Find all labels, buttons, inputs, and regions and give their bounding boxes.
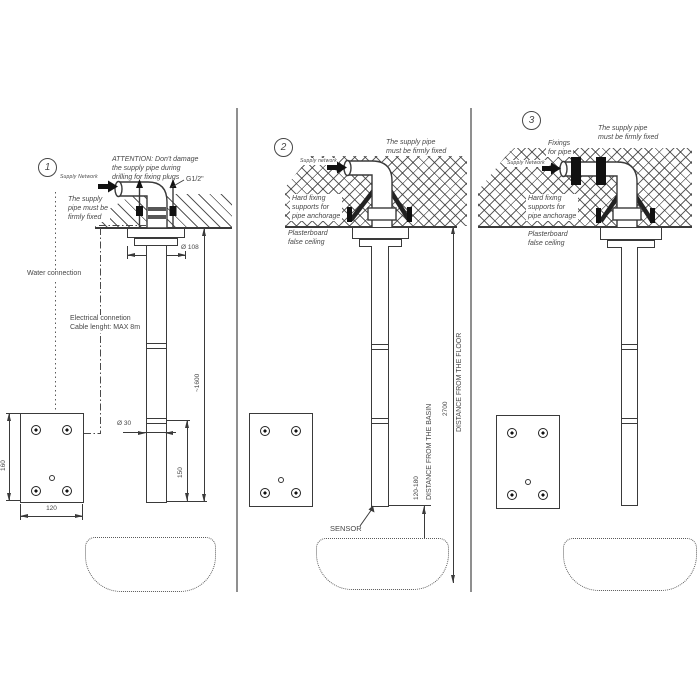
plate-hole — [260, 426, 270, 436]
panel1-number-text: 1 — [45, 162, 51, 173]
flow-arrow-icon — [98, 184, 108, 189]
panel3-firmly-fixed-label: The supply pipe must be firmly fixed — [596, 124, 660, 142]
panel2-plasterboard-label: Plasterboard false ceiling — [288, 229, 328, 247]
panel1-mounting-plate — [20, 413, 84, 503]
flow-arrow-icon — [327, 165, 337, 170]
panel3-pipe-clamp — [596, 157, 606, 185]
panel1-dim-plate-w-line — [20, 516, 83, 517]
panel1-basin-outline — [85, 537, 216, 592]
plate-center-hole — [525, 479, 531, 485]
panel2-dim-floor: 2700 — [442, 400, 449, 418]
panel1-electrical-label: Electrical connetion Cable lenght: MAX 8… — [68, 315, 142, 333]
plate-center-hole — [49, 475, 55, 481]
plate-hole — [62, 425, 72, 435]
panel1-dim-plate-w: 120 — [20, 505, 83, 512]
panel-divider-2 — [470, 108, 472, 592]
panel2-sensor-label: SENSOR — [330, 524, 362, 533]
panel2-vertical-pipe — [371, 246, 389, 507]
panel2-dim-floor-label: DISTANCE FROM THE FLOOR — [456, 333, 463, 432]
panel3-hard-fixing-label: Hard fixing supports for pipe anchorage — [526, 194, 578, 221]
panel2-anchor-right — [407, 207, 412, 222]
panel3-number: 3 — [522, 111, 541, 130]
plate-hole — [291, 426, 301, 436]
panel1-dim-height: ~1600 — [194, 374, 201, 392]
plate-hole — [291, 488, 301, 498]
panel1-vertical-pipe — [146, 246, 167, 503]
panel1-number: 1 — [38, 158, 57, 177]
panel1-thread-size-label: G1/2" — [186, 176, 204, 185]
panel2-dim-basin-label: DISTANCE FROM THE BASIN — [426, 404, 433, 500]
plate-hole — [62, 486, 72, 496]
panel3-pipe-cap — [560, 162, 567, 177]
panel3-mounting-plate — [496, 415, 560, 509]
panel3-anchor-left — [596, 208, 601, 223]
plate-hole — [31, 486, 41, 496]
panel1-dim-sensor-line — [187, 420, 188, 501]
panel2-mounting-plate — [249, 413, 313, 507]
panel3-plasterboard-label: Plasterboard false ceiling — [528, 230, 568, 248]
panel1-flange-bottom — [134, 238, 178, 246]
panel1-thread-band — [148, 215, 166, 219]
panel1-dim-height-line — [204, 228, 205, 502]
panel1-dim-plate-h-line — [9, 413, 10, 501]
plate-hole — [538, 490, 548, 500]
panel2-flange-top — [352, 227, 409, 239]
panel1-water-connection-label: Water connection — [25, 270, 83, 279]
panel2-basin-outline — [316, 538, 449, 590]
panel2-pipe-collar — [368, 208, 396, 220]
panel3-basin-outline — [563, 538, 697, 591]
flow-arrow-icon — [542, 166, 551, 171]
plate-hole — [260, 488, 270, 498]
panel1-thread-band — [148, 207, 166, 211]
plate-center-hole — [278, 477, 284, 483]
panel3-pipe-collar — [613, 208, 641, 220]
panel1-pipe-cap — [115, 182, 122, 197]
plate-hole — [507, 428, 517, 438]
panel1-pipe-elbow — [118, 182, 167, 228]
panel3-flange-top — [600, 227, 662, 240]
panel1-flange-top — [127, 228, 185, 238]
plate-hole — [31, 425, 41, 435]
panel3-vertical-pipe — [621, 247, 638, 506]
panel1-dim-plate-h: 160 — [0, 460, 7, 471]
panel3-pipe-clamp — [571, 157, 581, 185]
plate-hole — [507, 490, 517, 500]
panel2-hard-fixing-label: Hard fixing supports for pipe anchorage — [290, 194, 342, 221]
panel1-electrical-path-top — [99, 225, 146, 226]
panel1-water-path — [55, 192, 56, 412]
panel1-dim-sensor: 150 — [177, 467, 184, 478]
panel1-dim-pipe: Ø 30 — [117, 420, 131, 427]
plate-hole — [538, 428, 548, 438]
panel2-dim-floor-line — [453, 227, 454, 583]
panel2-anchor-left — [347, 207, 352, 222]
panel3-anchor-right — [650, 208, 655, 223]
panel1-dim-flange: Ø 108 — [179, 244, 201, 251]
installation-diagram: 1 ATTENTION: Don't damage the supply pip… — [0, 0, 700, 700]
panel2-dim-basin-range: 120-180 — [413, 476, 420, 500]
